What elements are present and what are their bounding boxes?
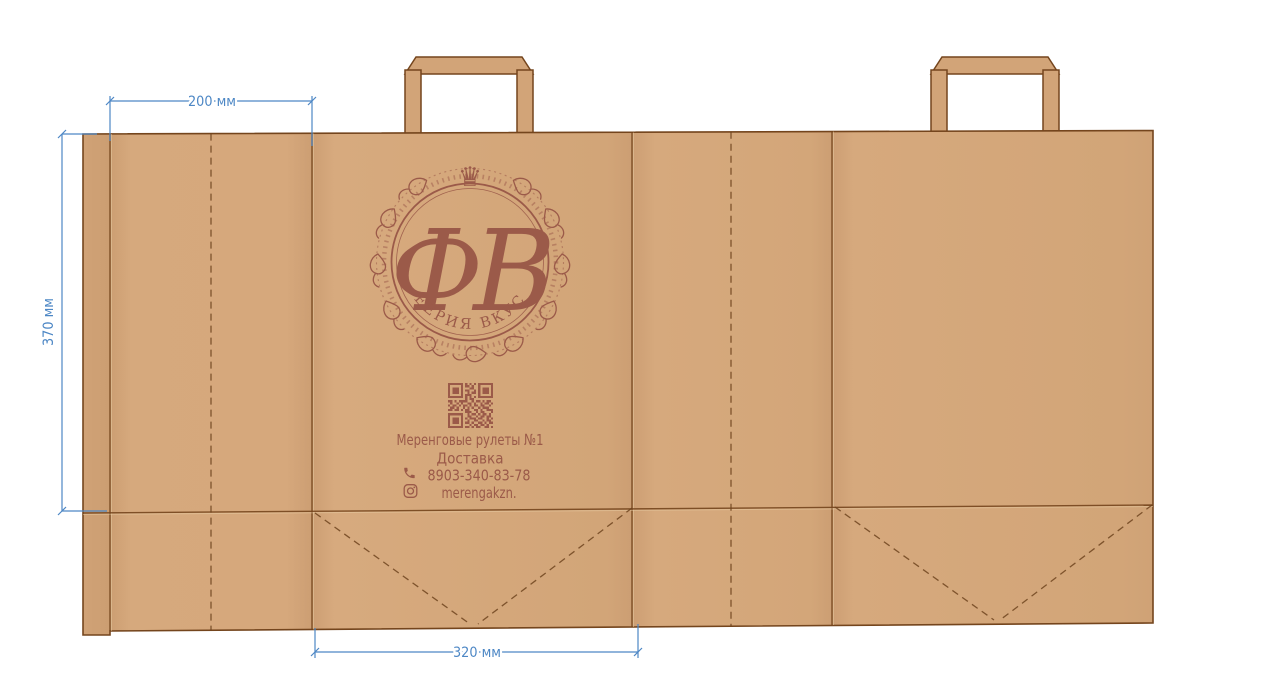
handle-right-strap-a (931, 70, 947, 134)
handle-left-strap-b (517, 70, 533, 134)
gusset-width-label: 200 мм (188, 94, 236, 110)
contact-phone: 8903-340-83-78 (428, 467, 531, 485)
panel-width-label: 320 мм (453, 645, 501, 661)
contact-line2: Доставка (437, 450, 504, 468)
bag-dieline-canvas: ♛ ФВ ФЕЕРИЯ ВКУСА Меренговые рулеты №1 Д… (0, 0, 1281, 683)
handle-right (931, 57, 1059, 134)
handle-left (405, 57, 533, 134)
bag-height-label: 370 мм (41, 298, 57, 346)
contact-instagram: merengakzn. (442, 484, 517, 502)
handle-left-strap-a (405, 70, 421, 134)
crown-icon: ♛ (458, 162, 482, 193)
handle-right-top-bar (931, 57, 1059, 74)
handle-right-strap-b (1043, 70, 1059, 134)
handle-left-top-bar (405, 57, 533, 74)
bag-sheet (83, 131, 1153, 636)
contact-line1: Меренговые рулеты №1 (397, 431, 544, 449)
artboard: ♛ ФВ ФЕЕРИЯ ВКУСА Меренговые рулеты №1 Д… (0, 0, 1281, 683)
